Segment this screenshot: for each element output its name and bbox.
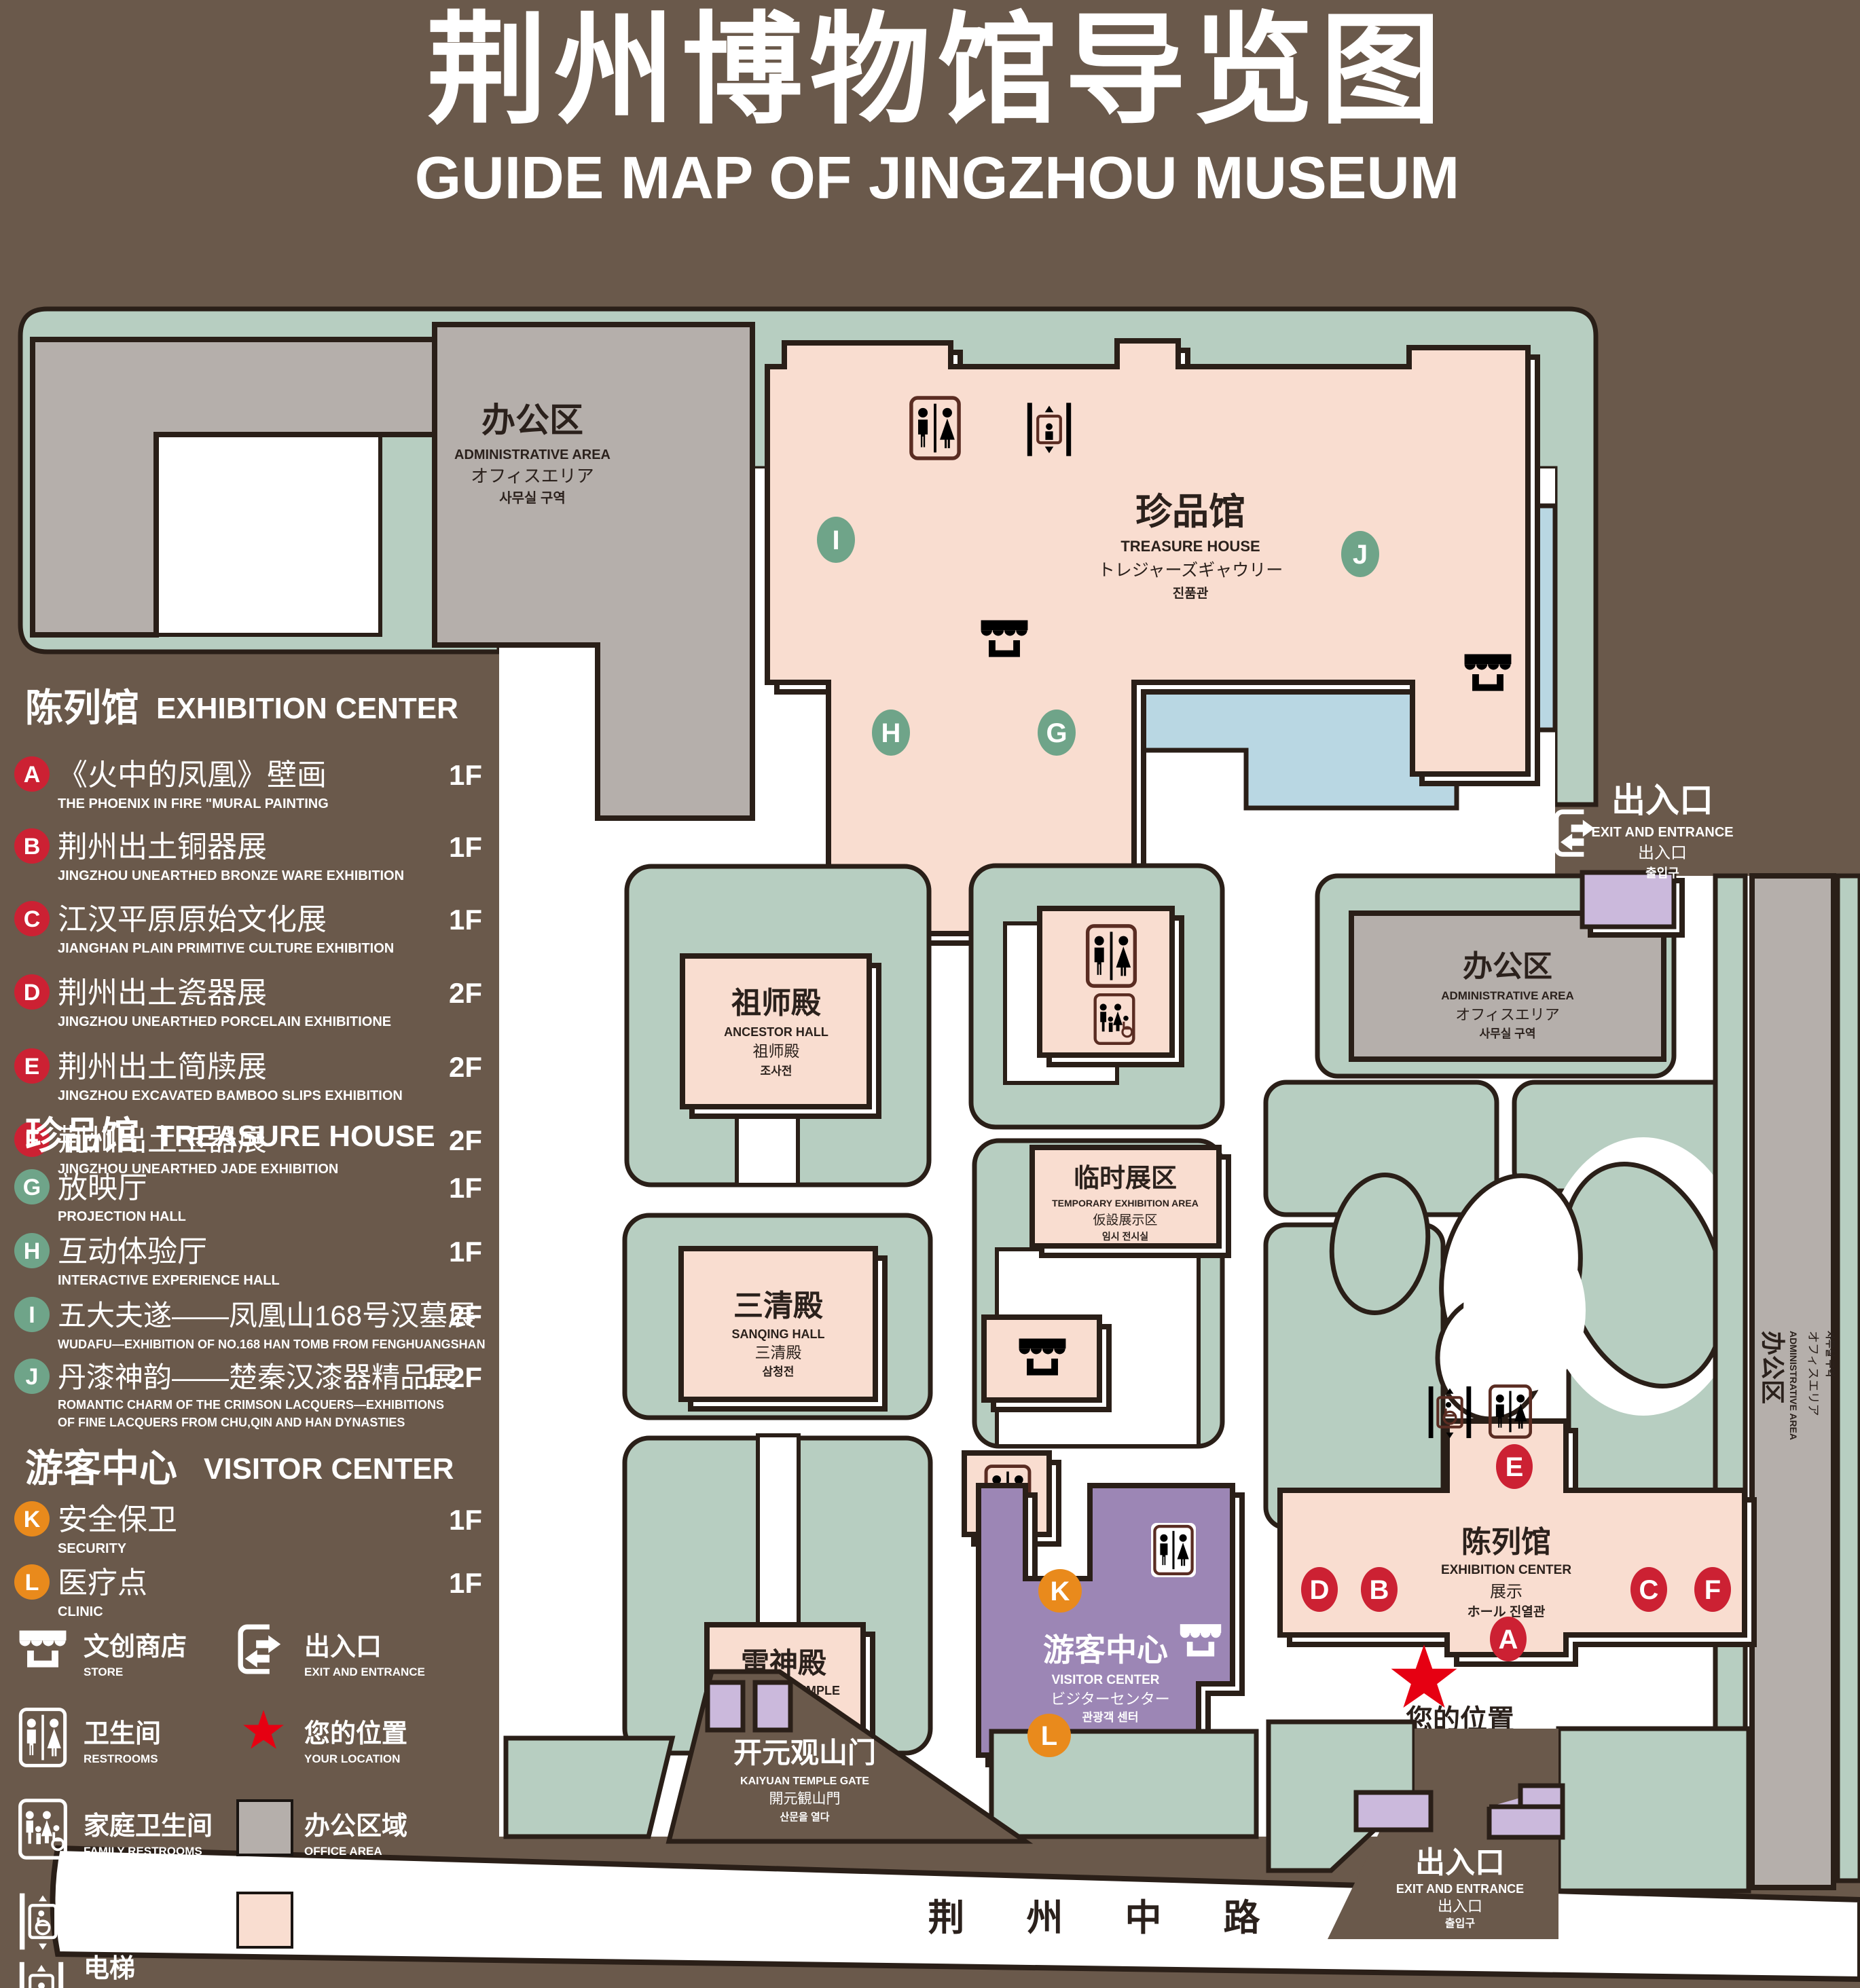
svg-text:办公区: 办公区 <box>1463 950 1552 983</box>
svg-text:2F: 2F <box>449 977 482 1009</box>
svg-text:D: D <box>1310 1575 1330 1605</box>
svg-text:ADMINISTRATIVE AREA: ADMINISTRATIVE AREA <box>1788 1331 1799 1440</box>
legend-office-label: 办公区域 <box>304 1812 407 1841</box>
svg-text:TREASURE HOUSE: TREASURE HOUSE <box>1120 538 1260 555</box>
page-title: 荆州博物馆导览图 <box>426 3 1448 138</box>
svg-text:1F: 1F <box>449 1172 482 1204</box>
thunder-courtyard-path <box>758 1435 799 1626</box>
svg-text:SECURITY: SECURITY <box>58 1541 127 1556</box>
marker-L: L <box>1027 1714 1071 1757</box>
legend-store-label: 文创商店 <box>84 1633 187 1661</box>
east-strip-green-right <box>1838 876 1860 1881</box>
svg-text:PROJECTION HALL: PROJECTION HALL <box>58 1209 186 1224</box>
marker-A: A <box>1490 1617 1527 1661</box>
svg-text:L: L <box>25 1570 39 1596</box>
svg-text:陈列馆: 陈列馆 <box>25 686 139 729</box>
marker-D: D <box>1301 1567 1338 1612</box>
svg-text:仮設展示区: 仮設展示区 <box>1093 1213 1157 1228</box>
svg-text:出入口: 出入口 <box>1611 781 1713 820</box>
svg-text:三清殿: 三清殿 <box>733 1289 823 1323</box>
svg-text:開元観山門: 開元観山門 <box>769 1791 841 1807</box>
svg-text:江汉平原原始文化展: 江汉平原原始文化展 <box>58 903 327 936</box>
svg-text:出入口: 出入口 <box>1415 1846 1505 1879</box>
svg-text:ADMINISTRATIVE AREA: ADMINISTRATIVE AREA <box>454 447 610 462</box>
svg-text:オフィスエリア: オフィスエリア <box>1455 1006 1560 1023</box>
svg-text:출입구: 출입구 <box>1645 866 1679 880</box>
garden-pond-join <box>1463 1229 1586 1392</box>
svg-text:医疗点: 医疗点 <box>58 1566 147 1600</box>
svg-text:J: J <box>1353 540 1368 570</box>
admin-west-courtyard <box>156 435 380 635</box>
svg-text:삼청전: 삼청전 <box>763 1365 795 1378</box>
gate-door-west <box>708 1682 743 1730</box>
svg-text:THE PHOENIX IN FIRE "MURAL PAI: THE PHOENIX IN FIRE "MURAL PAINTING <box>58 796 329 811</box>
legend-family-caption: FAMILY RESTROOMS <box>84 1845 202 1858</box>
marker-G: G <box>1038 710 1076 756</box>
svg-text:《火中的凤凰》壁画: 《火中的凤凰》壁画 <box>58 758 327 792</box>
svg-text:JINGZHOU EXCAVATED BAMBOO SLIP: JINGZHOU EXCAVATED BAMBOO SLIPS EXHIBITI… <box>58 1088 403 1103</box>
svg-text:EXIT AND ENTRANCE: EXIT AND ENTRANCE <box>1591 825 1733 840</box>
svg-text:E: E <box>1506 1452 1524 1482</box>
marker-E: E <box>1496 1444 1533 1489</box>
svg-text:珍品馆: 珍品馆 <box>25 1114 139 1157</box>
marker-I: I <box>817 517 855 563</box>
legend-accessible-elevator-caption: ACCESSIBLE ELEVATOR <box>84 1937 222 1950</box>
svg-text:H: H <box>881 718 901 748</box>
gate-door-east <box>755 1682 790 1730</box>
svg-text:祖师殿: 祖师殿 <box>753 1042 800 1060</box>
legend-family-label: 家庭卫生间 <box>84 1811 213 1841</box>
legend-elevator-label: 电梯 <box>84 1955 135 1983</box>
svg-text:EXHIBITION CENTER: EXHIBITION CENTER <box>1441 1563 1571 1577</box>
svg-text:조사전: 조사전 <box>761 1065 792 1078</box>
svg-text:放映厅: 放映厅 <box>58 1171 147 1204</box>
svg-text:展示: 展示 <box>1490 1583 1522 1601</box>
svg-text:荆州出土简牍展: 荆州出土简牍展 <box>58 1050 267 1084</box>
marker-K: K <box>1038 1569 1082 1613</box>
svg-text:JINGZHOU UNEARTHED BRONZE WARE: JINGZHOU UNEARTHED BRONZE WARE EXHIBITIO… <box>58 868 404 883</box>
svg-text:G: G <box>23 1175 41 1200</box>
svg-text:WUDAFU—EXHIBITION OF NO.168 HA: WUDAFU—EXHIBITION OF NO.168 HAN TOMB FRO… <box>58 1338 486 1351</box>
legend-display-caption: DISPLAY AREA <box>304 1937 388 1950</box>
svg-text:I: I <box>29 1302 35 1328</box>
svg-text:A: A <box>24 762 41 788</box>
svg-text:2F: 2F <box>449 1124 482 1156</box>
guide-map-page: 荆州博物馆导览图 GUIDE MAP OF JINGZHOU MUSEUM 办公… <box>0 0 1860 1988</box>
svg-text:C: C <box>1639 1575 1659 1605</box>
svg-text:L: L <box>1041 1721 1057 1751</box>
svg-text:互动体验厅: 互动体验厅 <box>58 1235 207 1268</box>
svg-text:VISITOR CENTER: VISITOR CENTER <box>204 1452 454 1486</box>
road-label: 荆 州 中 路 <box>928 1898 1285 1938</box>
svg-text:F: F <box>1704 1575 1721 1605</box>
svg-text:1-2F: 1-2F <box>424 1361 482 1393</box>
svg-text:荆州出土瓷器展: 荆州出土瓷器展 <box>58 976 267 1010</box>
legend-display-label: 展示区域 <box>304 1904 407 1933</box>
page-subtitle: GUIDE MAP OF JINGZHOU MUSEUM <box>415 144 1459 211</box>
restroom-block <box>1040 908 1172 1055</box>
svg-text:D: D <box>24 980 41 1006</box>
legend-item-I: I 五大夫遂——凤凰山168号汉墓展 2F WUDAFU—EXHIBITION … <box>14 1297 486 1351</box>
svg-text:办公区: 办公区 <box>481 401 583 439</box>
legend-location-caption: YOUR LOCATION <box>304 1752 400 1765</box>
svg-text:2F: 2F <box>449 1300 482 1331</box>
svg-text:荆州出土铜器展: 荆州出土铜器展 <box>58 830 267 864</box>
svg-text:办公区: 办公区 <box>1759 1331 1787 1404</box>
svg-text:EXIT AND ENTRANCE: EXIT AND ENTRANCE <box>1396 1882 1524 1896</box>
svg-text:1F: 1F <box>449 1567 482 1599</box>
svg-text:ADMINISTRATIVE AREA: ADMINISTRATIVE AREA <box>1441 989 1574 1002</box>
svg-text:B: B <box>1370 1575 1389 1605</box>
svg-text:临时展区: 临时展区 <box>1074 1164 1177 1193</box>
svg-text:진품관: 진품관 <box>1173 586 1209 601</box>
svg-text:1F: 1F <box>449 1504 482 1536</box>
legend-store-caption: STORE <box>84 1665 123 1678</box>
svg-text:1F: 1F <box>449 831 482 863</box>
svg-text:1F: 1F <box>449 1236 482 1268</box>
svg-text:トレジャーズギャウリー: トレジャーズギャウリー <box>1098 561 1283 580</box>
legend-office-caption: OFFICE AREA <box>304 1845 382 1858</box>
svg-text:사무실 구역: 사무실 구역 <box>1480 1027 1536 1040</box>
svg-text:1F: 1F <box>449 904 482 936</box>
svg-text:SANQING HALL: SANQING HALL <box>732 1327 825 1341</box>
svg-text:H: H <box>24 1238 41 1264</box>
svg-text:출입구: 출입구 <box>1445 1917 1475 1930</box>
svg-text:K: K <box>24 1507 41 1532</box>
svg-text:五大夫遂——凤凰山168号汉墓展: 五大夫遂——凤凰山168号汉墓展 <box>58 1300 476 1331</box>
svg-text:C: C <box>24 906 41 932</box>
svg-text:J: J <box>26 1364 39 1390</box>
svg-text:K: K <box>1051 1577 1070 1606</box>
marker-J: J <box>1341 531 1379 577</box>
svg-text:B: B <box>24 834 41 860</box>
svg-text:开元观山门: 开元观山门 <box>733 1737 876 1769</box>
svg-text:出入口: 出入口 <box>1438 1898 1482 1915</box>
svg-text:I: I <box>832 526 839 555</box>
svg-text:祖师殿: 祖师殿 <box>731 987 821 1020</box>
svg-text:珍品馆: 珍品馆 <box>1135 492 1245 532</box>
legend-exit-label: 出入口 <box>304 1633 382 1661</box>
svg-text:KAIYUAN TEMPLE GATE: KAIYUAN TEMPLE GATE <box>740 1775 869 1787</box>
svg-text:JIANGHAN PLAIN PRIMITIVE CULTU: JIANGHAN PLAIN PRIMITIVE CULTURE EXHIBIT… <box>58 941 394 956</box>
svg-text:游客中心: 游客中心 <box>1043 1632 1168 1668</box>
legend-location-label: 您的位置 <box>304 1720 407 1748</box>
east-exit-gate <box>1582 872 1674 927</box>
svg-text:陈列馆: 陈列馆 <box>1461 1526 1551 1559</box>
gate-west-green <box>506 1738 672 1837</box>
marker-H: H <box>872 710 910 756</box>
south-exit-east-green <box>1558 1729 1749 1891</box>
svg-text:TREASURE HOUSE: TREASURE HOUSE <box>156 1120 435 1153</box>
svg-text:安全保卫: 安全保卫 <box>58 1503 177 1536</box>
svg-text:1F: 1F <box>449 759 482 791</box>
svg-text:VISITOR CENTER: VISITOR CENTER <box>1051 1673 1159 1687</box>
svg-text:出入口: 出入口 <box>1638 844 1687 862</box>
legend-restrooms-label: 卫生间 <box>84 1720 161 1748</box>
marker-C: C <box>1630 1567 1667 1612</box>
marker-F: F <box>1694 1567 1731 1612</box>
svg-text:丹漆神韵——楚秦汉漆器精品展: 丹漆神韵——楚秦汉漆器精品展 <box>58 1361 457 1393</box>
museum-map-canvas: 荆州博物馆导览图 GUIDE MAP OF JINGZHOU MUSEUM 办公… <box>0 0 1860 1988</box>
svg-text:관광객 센터: 관광객 센터 <box>1082 1711 1139 1724</box>
svg-text:三清殿: 三清殿 <box>755 1344 802 1361</box>
south-exit-gate-west <box>1356 1792 1431 1830</box>
svg-text:TEMPORARY EXHIBITION AREA: TEMPORARY EXHIBITION AREA <box>1052 1198 1199 1209</box>
svg-text:사무실 구역: 사무실 구역 <box>499 490 566 506</box>
svg-text:임시 전시실: 임시 전시실 <box>1102 1231 1148 1242</box>
svg-text:INTERACTIVE EXPERIENCE HALL: INTERACTIVE EXPERIENCE HALL <box>58 1273 280 1288</box>
svg-text:EXHIBITION CENTER: EXHIBITION CENTER <box>156 692 458 725</box>
svg-text:游客中心: 游客中心 <box>25 1447 177 1490</box>
svg-text:CLINIC: CLINIC <box>58 1604 103 1619</box>
svg-text:JINGZHOU UNEARTHED PORCELAIN E: JINGZHOU UNEARTHED PORCELAIN EXHIBITIONE <box>58 1014 391 1029</box>
legend-accessible-elevator-label: 无障碍电梯 <box>84 1904 213 1933</box>
svg-text:A: A <box>1499 1625 1518 1655</box>
svg-text:ビジターセンター: ビジターセンター <box>1051 1691 1170 1708</box>
store-block <box>984 1317 1099 1400</box>
marker-B: B <box>1361 1567 1398 1612</box>
office-area-swatch <box>238 1801 292 1855</box>
legend-exit-caption: EXIT AND ENTRANCE <box>304 1665 425 1678</box>
svg-text:ANCESTOR HALL: ANCESTOR HALL <box>724 1025 828 1039</box>
svg-text:사무실 구역: 사무실 구역 <box>1825 1331 1836 1377</box>
svg-text:G: G <box>1046 718 1067 748</box>
svg-text:2F: 2F <box>449 1051 482 1083</box>
svg-text:OF FINE LACQUERS FROM CHU,QIN: OF FINE LACQUERS FROM CHU,QIN AND HAN DY… <box>58 1416 405 1429</box>
svg-text:E: E <box>24 1054 40 1080</box>
svg-text:オフィスエリア: オフィスエリア <box>471 466 594 486</box>
display-area-swatch <box>238 1893 292 1947</box>
svg-text:オフィスエリア: オフィスエリア <box>1806 1331 1820 1416</box>
legend-restrooms-caption: RESTROOMS <box>84 1752 158 1765</box>
svg-text:산문을 열다: 산문을 열다 <box>780 1811 829 1823</box>
svg-text:ROMANTIC CHARM OF THE CRIMSON: ROMANTIC CHARM OF THE CRIMSON LACQUERS—E… <box>58 1398 444 1412</box>
